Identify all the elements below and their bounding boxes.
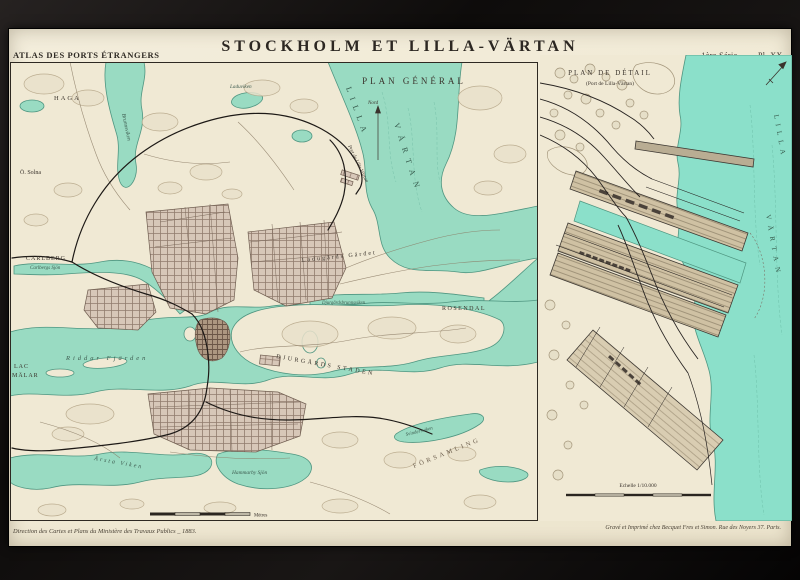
label-hammarby-sjon: Hammarby Sjön bbox=[231, 470, 267, 476]
label-laduviken: Laduviken bbox=[229, 84, 252, 90]
label-rosendal: ROSENDAL bbox=[442, 306, 486, 312]
label-nord: Nord bbox=[367, 101, 379, 106]
label-carlberg-sjon: Carlbergs Sjön bbox=[30, 266, 61, 271]
label-riddarfjarden: Riddar Fjärden bbox=[65, 355, 148, 362]
map-sheet: ATLAS DES PORTS ÉTRANGERS STOCKHOLM ET L… bbox=[9, 29, 791, 546]
detail-scale-label: Echelle 1/10.000 bbox=[619, 483, 657, 489]
credit-publisher: Direction des Cartes et Plans du Ministè… bbox=[13, 528, 196, 535]
label-carlberg: CARLBERG bbox=[26, 256, 66, 262]
plan-detail-map: Echelle 1/10.000 PLAN DE DÉTAIL (Port de… bbox=[540, 55, 792, 521]
map-title: STOCKHOLM ET LILLA-VÄRTAN bbox=[9, 38, 791, 56]
detail-title: PLAN DE DÉTAIL bbox=[568, 69, 652, 77]
credit-engraver: Gravé et Imprimé chez Becquet Fres et Si… bbox=[605, 525, 781, 531]
label-djurgardsbrunnsviken: Djurgårdsbrunnsviken bbox=[321, 300, 366, 306]
label-solna: Ö. Solna bbox=[20, 169, 41, 176]
plan-general-subtitle: PLAN GÉNÉRAL bbox=[362, 76, 466, 86]
label-malar: MÄLAR bbox=[12, 372, 39, 379]
label-lac: LAC bbox=[14, 364, 29, 370]
label-haga: HAGA bbox=[54, 95, 81, 102]
detail-subtitle: (Port de Lilla-Värtan) bbox=[586, 80, 634, 87]
plan-general-map: Mètres PLAN GÉNÉRAL HAGA Ö. Solna Brunns… bbox=[10, 62, 538, 521]
scale-unit-label: Mètres bbox=[254, 514, 267, 519]
